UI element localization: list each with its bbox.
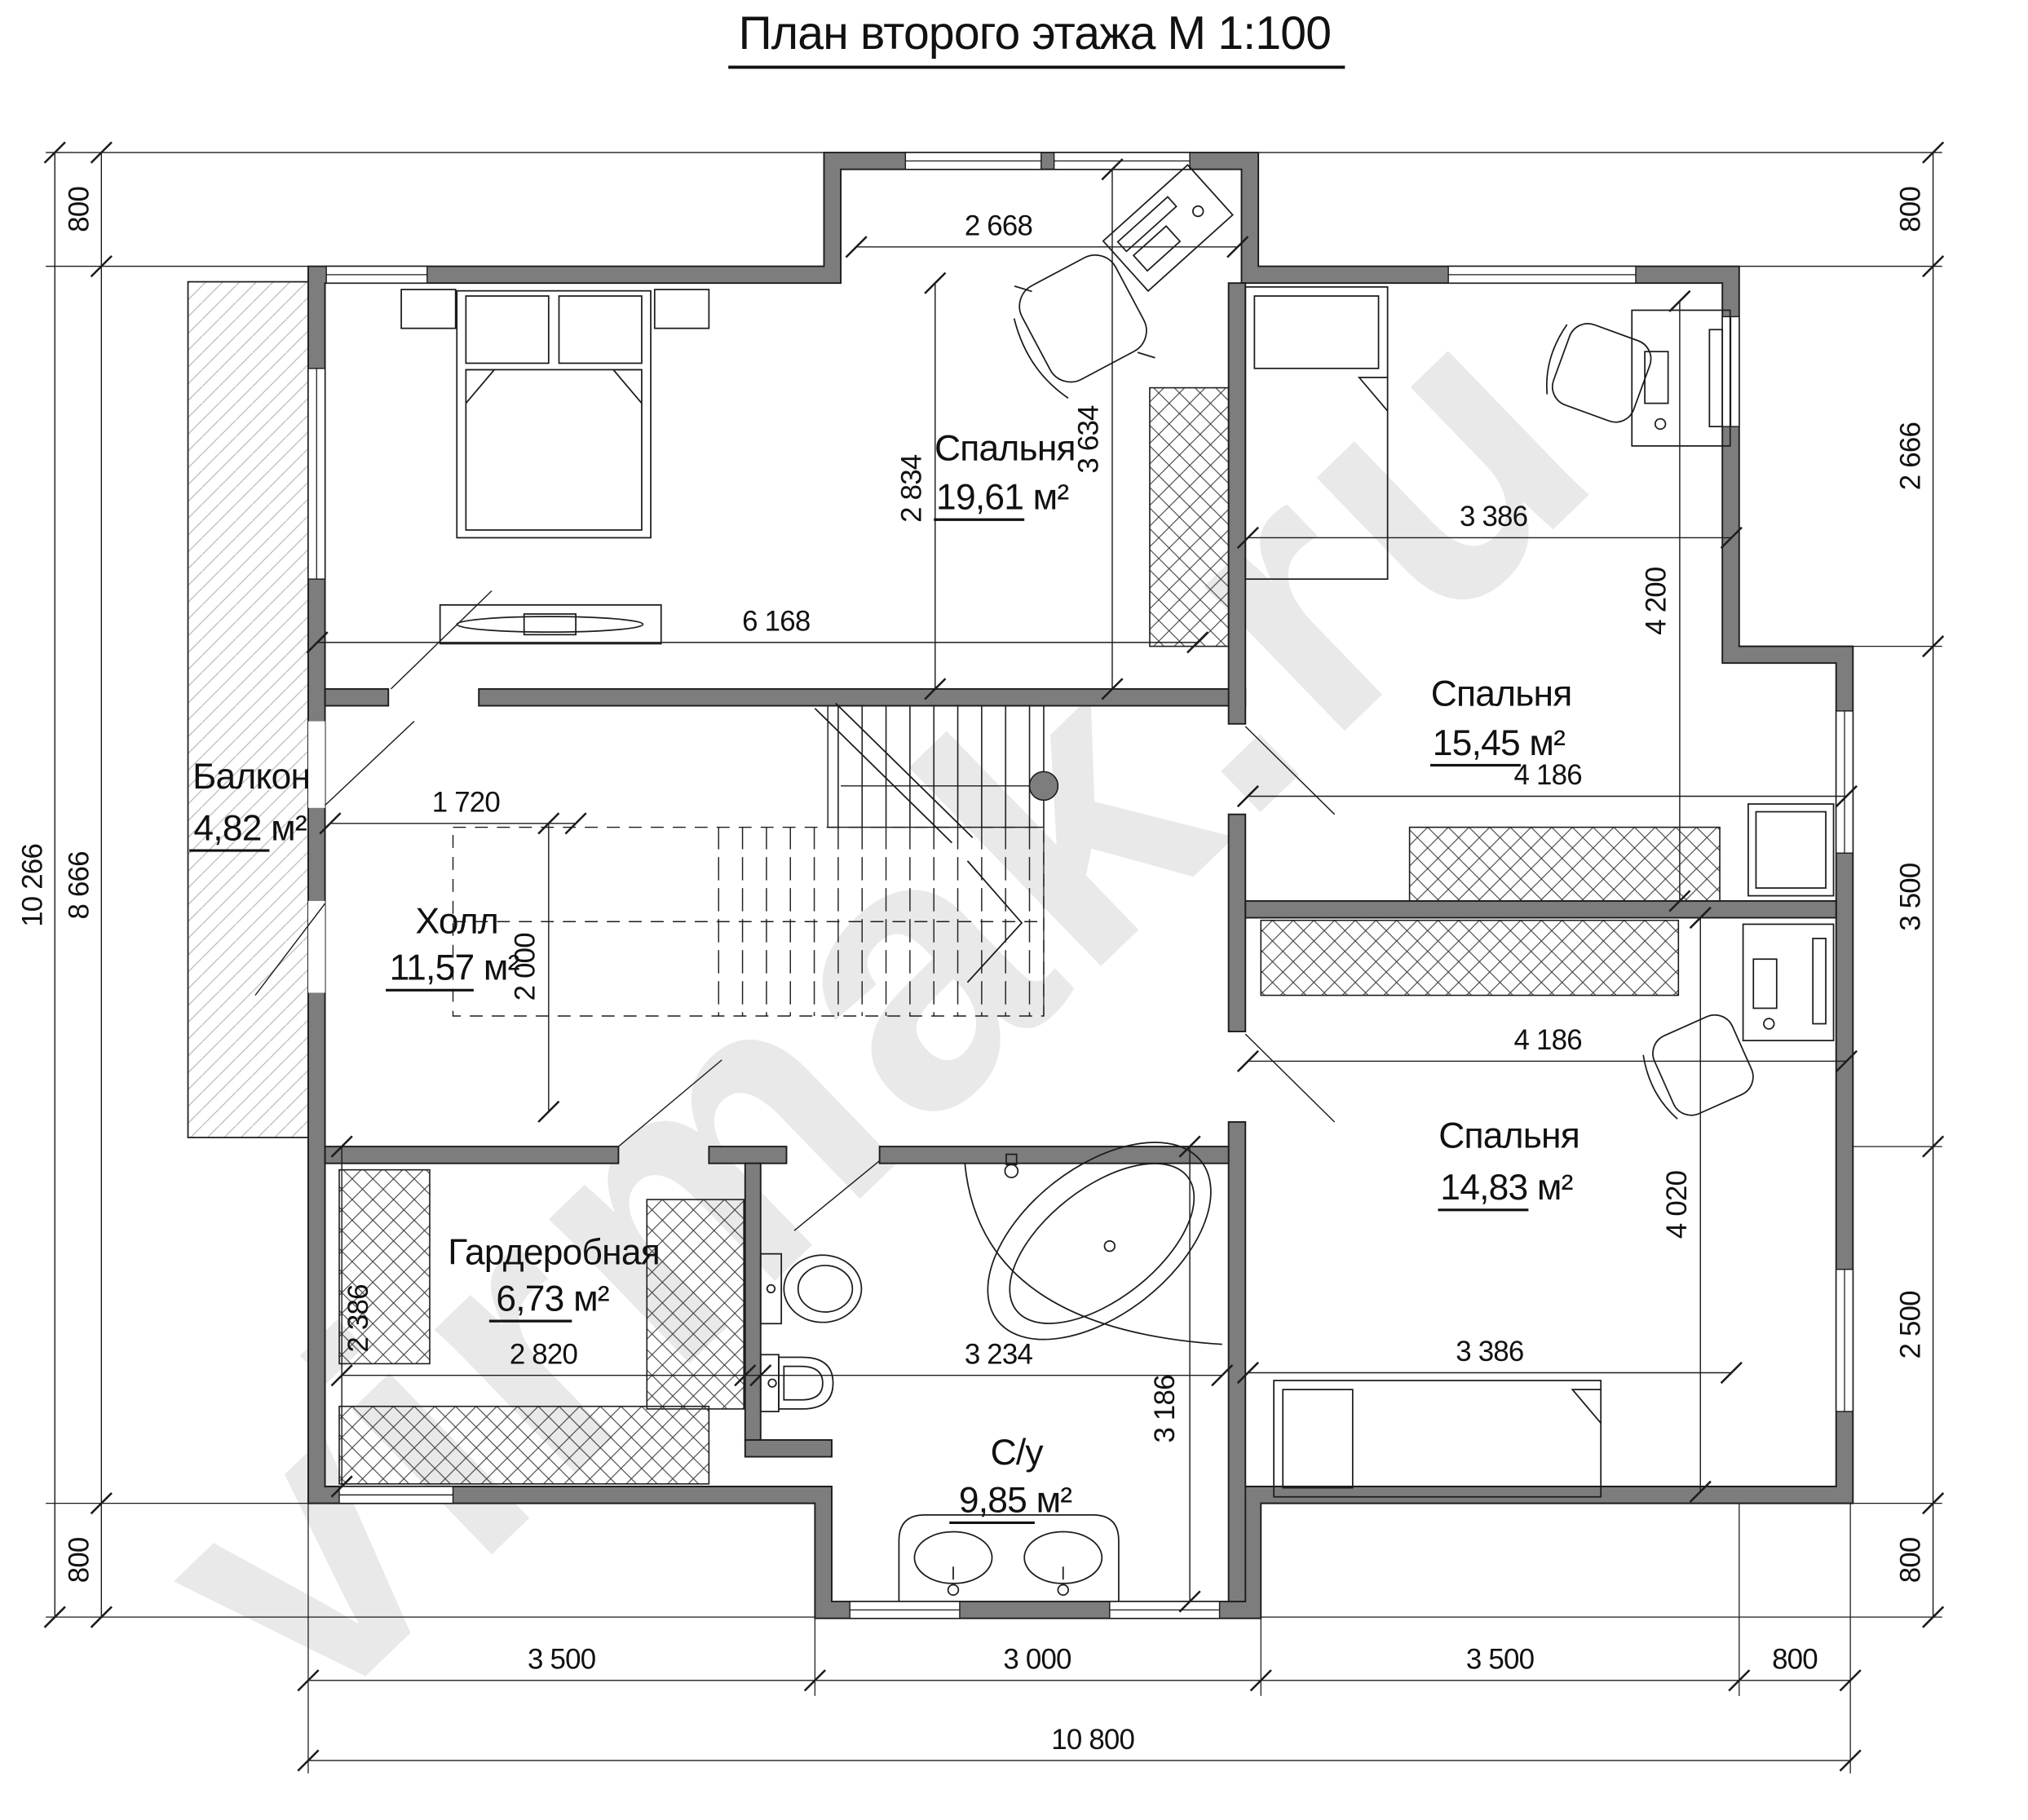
window-icon [339, 1486, 453, 1504]
room-label-bedroom2: Спальня [1431, 674, 1572, 714]
room-area-hall: 11,57 м² [390, 948, 519, 988]
dim-bathroom-depth: 3 186 [1149, 1375, 1181, 1442]
room-label-bedroom3: Спальня [1438, 1116, 1580, 1156]
floor-plan: virmak.ru [0, 0, 2028, 1820]
room-label-bathroom: С/у [991, 1433, 1045, 1473]
dim-b2-depth: 4 200 [1640, 567, 1672, 635]
single-bed [1274, 1380, 1601, 1497]
dresser [1748, 804, 1834, 896]
tv-console [440, 605, 661, 644]
room-area-bathroom: 9,85 м² [959, 1481, 1071, 1521]
staircase [453, 703, 1058, 1016]
dim-b3-depth: 4 020 [1661, 1170, 1693, 1239]
window-icon [1836, 1270, 1853, 1411]
wardrobe-hatched [1150, 388, 1229, 647]
dim-b2-width: 3 386 [1460, 501, 1527, 532]
dim-left-top: 800 [63, 187, 95, 232]
dim-b1-depth-full: 3 634 [1073, 405, 1105, 474]
dim-right-1: 800 [1895, 187, 1927, 232]
wardrobe-hatched [1261, 921, 1678, 996]
dim-b3-width: 3 386 [1456, 1336, 1523, 1367]
window-icon [1110, 1601, 1220, 1619]
double-bed [457, 291, 651, 538]
desk-computer [1632, 310, 1730, 445]
room-area-bedroom2: 15,45 м² [1433, 723, 1565, 763]
nightstand [401, 289, 456, 329]
dim-wardrobe-width: 2 820 [510, 1338, 578, 1370]
room-area-wardrobe: 6,73 м² [496, 1279, 608, 1319]
balcony-slab [188, 282, 308, 1137]
window-icon [850, 1601, 960, 1619]
double-sink-vanity [899, 1515, 1118, 1601]
armchair [996, 240, 1162, 409]
window-icon [308, 369, 325, 579]
dim-right-4: 2 500 [1895, 1291, 1927, 1359]
window-icon [1448, 267, 1636, 284]
dim-bottom-total: 10 800 [1051, 1724, 1134, 1756]
dim-hall-width: 1 720 [432, 787, 501, 819]
dim-right-5: 800 [1895, 1537, 1927, 1583]
page-title: План второго этажа М 1:100 [739, 7, 1332, 60]
office-chair [1636, 1009, 1759, 1126]
dim-wardrobe-depth: 2 386 [342, 1284, 374, 1352]
door-leaf-balcony-in [325, 722, 414, 806]
dim-left-bottom: 800 [63, 1537, 95, 1583]
room-area-balcony: 4,82 м² [193, 808, 306, 848]
dim-bottom-3: 3 500 [1466, 1644, 1535, 1676]
window-icon [326, 267, 427, 284]
dim-bottom-1: 3 500 [528, 1644, 596, 1676]
dim-right-2: 2 666 [1895, 422, 1927, 490]
room-area-bedroom3: 14,83 м² [1440, 1168, 1572, 1208]
desk-computer [1103, 165, 1233, 291]
window-icon [1836, 711, 1853, 853]
dim-left-mid: 8 666 [63, 851, 95, 919]
dim-b1-width: 6 168 [742, 606, 810, 638]
door-leaf-bedroom3 [1245, 1034, 1334, 1122]
room-label-bedroom1: Спальня [934, 428, 1076, 468]
dim-b1-depth: 2 834 [895, 454, 927, 523]
dim-right-3: 3 500 [1895, 863, 1927, 931]
wardrobe-hatched [647, 1199, 744, 1409]
dim-bathroom-width: 3 234 [965, 1338, 1033, 1370]
nightstand [655, 289, 709, 329]
dim-bottom-2: 3 000 [1003, 1644, 1071, 1676]
room-label-balcony: Балкон [192, 757, 310, 797]
furniture-bedroom3 [1261, 921, 1833, 1497]
wardrobe-hatched [339, 1407, 709, 1484]
room-label-hall: Холл [416, 902, 498, 942]
wardrobe-hatched [1410, 828, 1720, 901]
desk-computer [1743, 924, 1834, 1040]
room-area-bedroom1: 19,61 м² [936, 478, 1068, 518]
dim-left-total: 10 266 [16, 844, 48, 927]
dim-b1-top-window: 2 668 [965, 210, 1032, 242]
window-icon [905, 152, 1041, 170]
dim-b3-width-full: 4 186 [1514, 1024, 1582, 1056]
dim-bottom-4: 800 [1772, 1644, 1818, 1676]
stair-newel [1030, 771, 1058, 800]
room-label-wardrobe: Гардеробная [448, 1232, 660, 1272]
drawing-title: План второго этажа М 1:100 [728, 7, 1345, 67]
dim-b2-width-full: 4 186 [1514, 759, 1582, 791]
